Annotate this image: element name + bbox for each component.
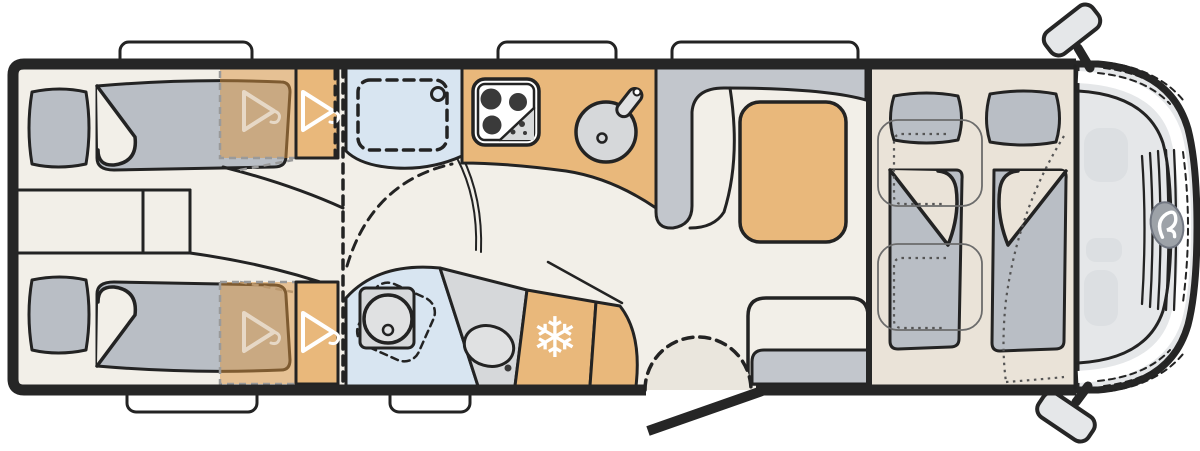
vanity-faucet-dot (505, 365, 512, 372)
dashboard-shape (1086, 238, 1122, 262)
mirror-glass (1040, 0, 1105, 59)
wardrobe-slide-bottom (220, 282, 296, 384)
floor-plan-canvas: ❄ (0, 0, 1200, 451)
motorhome-floor-plan: ❄ (0, 0, 1200, 451)
pillow (29, 277, 89, 353)
pillow-left (891, 93, 962, 143)
faucet-tip (634, 89, 641, 96)
entrance-door (648, 391, 762, 431)
dashboard-shape (1084, 270, 1118, 326)
hob-dot (511, 130, 516, 135)
fridge-block: ❄ (515, 290, 637, 386)
mirror-glass (1033, 389, 1098, 446)
snowflake-icon: ❄ (532, 306, 579, 371)
pillow (29, 89, 89, 167)
hob (473, 79, 539, 145)
wardrobe-slide-top (220, 66, 296, 158)
hob-dot (523, 131, 527, 135)
side-bench-cushion (752, 350, 868, 384)
dinette-table (740, 102, 846, 242)
burner (481, 89, 502, 110)
burner (483, 116, 502, 135)
burner (509, 93, 527, 111)
dashboard-shape (1084, 128, 1128, 182)
mirror-top (1040, 0, 1105, 68)
pillow-right (987, 91, 1060, 145)
hob-dot (519, 121, 525, 127)
